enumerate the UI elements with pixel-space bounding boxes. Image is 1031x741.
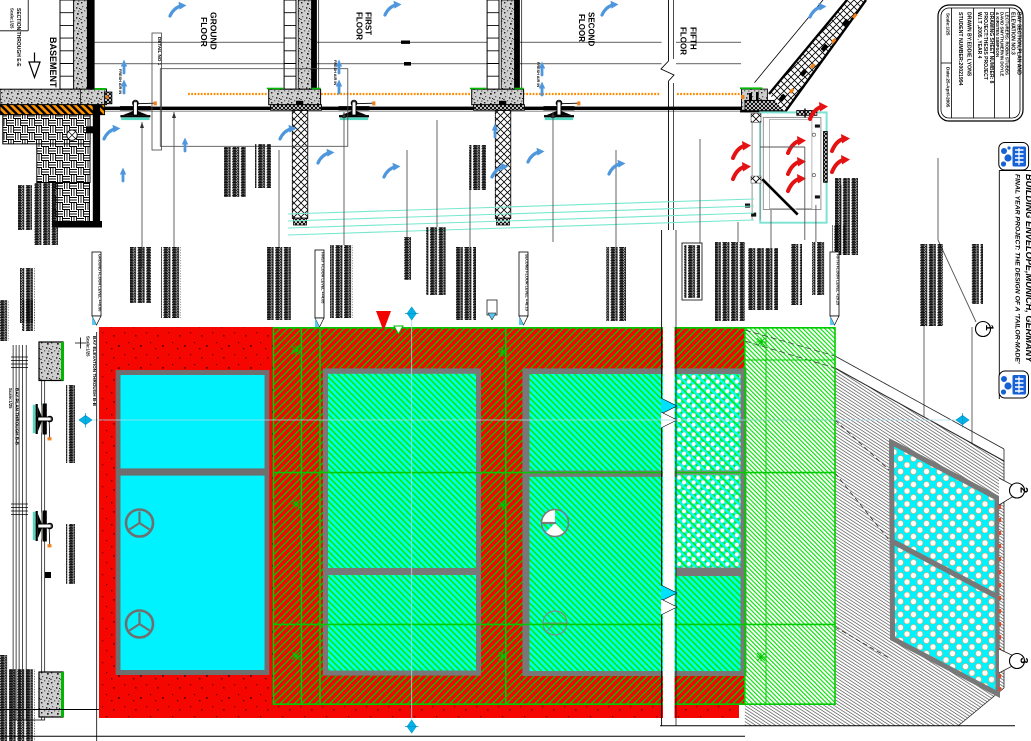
svg-text:FIFTH: FIFTH (689, 27, 698, 50)
svg-text:STUDENT NUMBER:20021994: STUDENT NUMBER:20021994 (957, 12, 963, 86)
svg-text:FRESH AIR IN: FRESH AIR IN (536, 62, 540, 87)
svg-text:1: 1 (983, 325, 995, 331)
svg-text:GROUND: GROUND (209, 12, 219, 50)
svg-text:DETAIL NO 1: DETAIL NO 1 (157, 37, 162, 66)
svg-text:SECOND: SECOND (587, 12, 596, 46)
svg-text:BAY PLAN THROUGH B-B: BAY PLAN THROUGH B-B (15, 388, 20, 446)
svg-text:Scale:1/25: Scale:1/25 (946, 13, 951, 36)
svg-text:Scale:1/25: Scale:1/25 (8, 388, 13, 409)
svg-text:FLOOR: FLOOR (577, 14, 586, 42)
svg-text:DRAWN BY:EDDIE LYONS: DRAWN BY:EDDIE LYONS (966, 12, 972, 77)
svg-text:FIRST FLOOR LEVEL ++4.05: FIRST FLOOR LEVEL ++4.05 (321, 252, 325, 303)
svg-text:FRESH AIR IN: FRESH AIR IN (333, 60, 337, 85)
svg-text:FIRST: FIRST (364, 12, 373, 35)
svg-text:SECTION THROUGH E-E: SECTION THROUGH E-E (15, 8, 21, 67)
svg-text:3: 3 (1018, 658, 1030, 664)
svg-text:FRESH AIR IN: FRESH AIR IN (118, 69, 122, 94)
svg-text:Scale:1/25: Scale:1/25 (10, 8, 15, 29)
svg-text:& KIRSTEN SIMPSON: & KIRSTEN SIMPSON (995, 12, 1000, 57)
svg-text:W.I.T ,2005 ,YEAR 4: W.I.T ,2005 ,YEAR 4 (976, 12, 982, 59)
svg-text:BASEMENT: BASEMENT (48, 37, 58, 88)
svg-text:ELEVATION NO:3: ELEVATION NO:3 (1009, 12, 1015, 55)
svg-text:2: 2 (1018, 487, 1030, 493)
svg-text:GROUND FLOOR LEVEL ++0.00: GROUND FLOOR LEVEL ++0.00 (98, 254, 102, 311)
svg-text:FLOOR: FLOOR (355, 12, 364, 40)
svg-text:Scale:1/25: Scale:1/25 (86, 336, 91, 357)
svg-text:BAY ELEVATION THROUGH B-B: BAY ELEVATION THROUGH B-B (92, 336, 97, 407)
svg-text:FINAL YEAR PROJECT: THE DESIGN: FINAL YEAR PROJECT: THE DESIGN OF A 'TAI… (1014, 174, 1021, 364)
svg-text:FLOOR: FLOOR (199, 17, 209, 47)
svg-text:Date:25-April-2005: Date:25-April-2005 (946, 67, 951, 108)
svg-text:BUILDING ENVELOPE,MUNICH, GERM: BUILDING ENVELOPE,MUNICH, GERMANY (1024, 174, 1031, 363)
svg-text:FIFTH FLOOR LEVEL +20.25: FIFTH FLOOR LEVEL +20.25 (836, 254, 840, 305)
svg-text:SECOND FLOOR LEVEL ++8.10: SECOND FLOOR LEVEL ++8.10 (525, 254, 529, 311)
svg-text:FLOOR: FLOOR (679, 27, 688, 55)
